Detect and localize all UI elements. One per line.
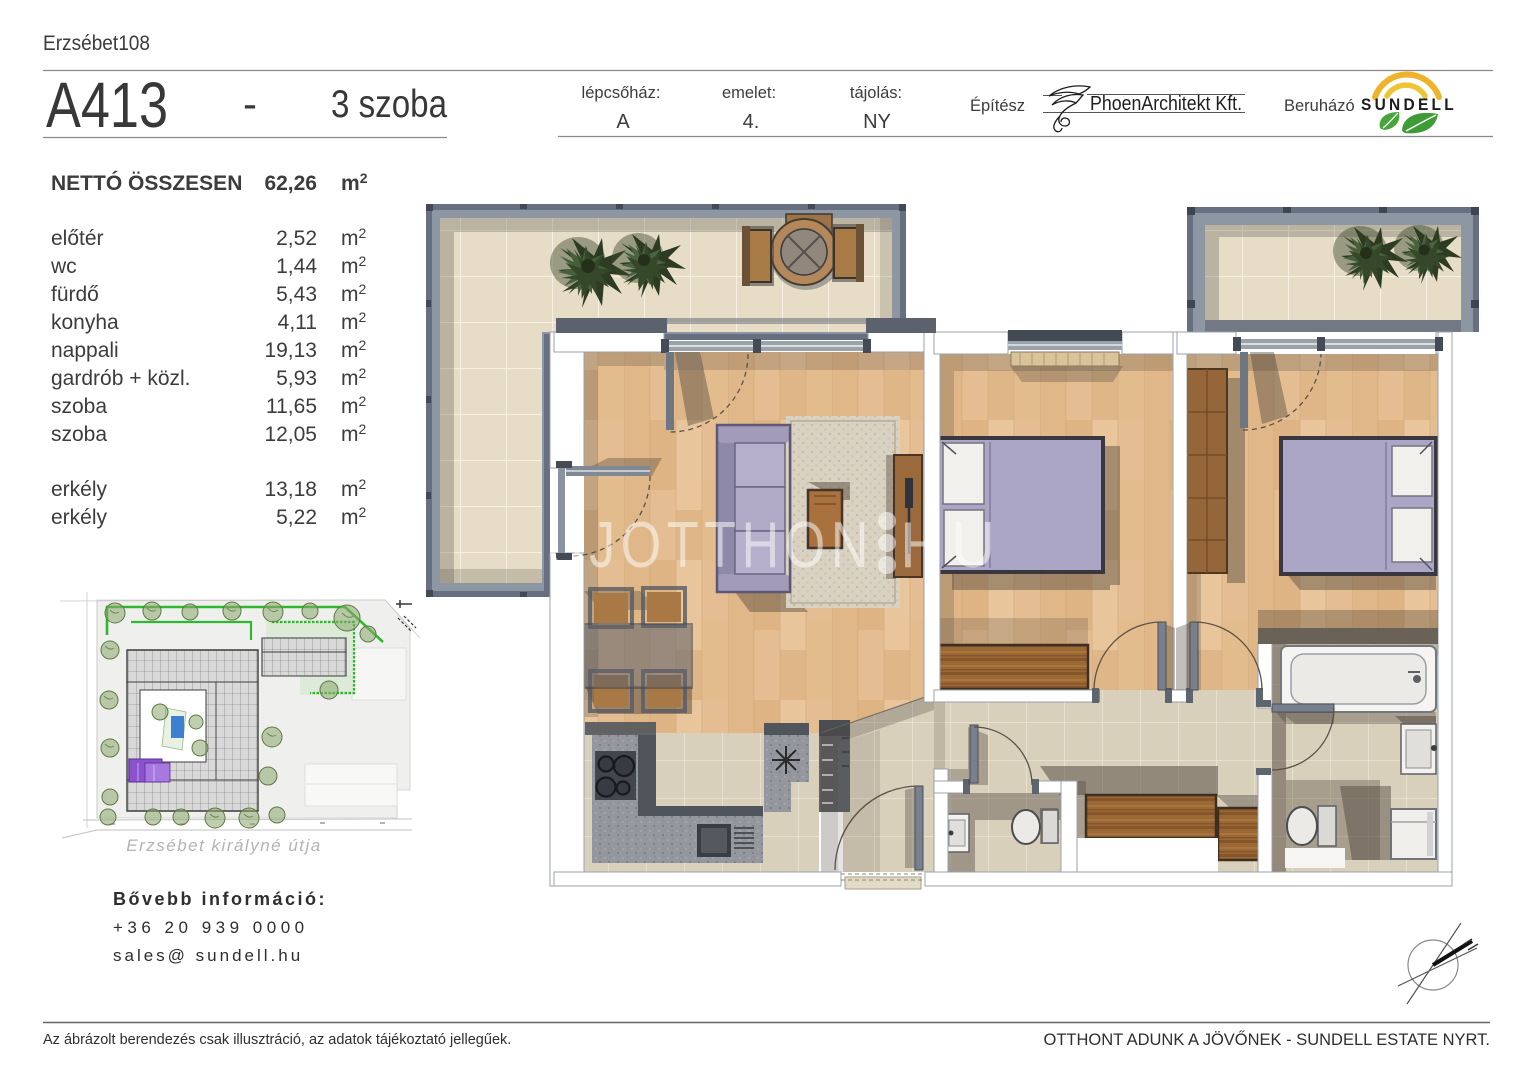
svg-text:erkély: erkély — [51, 506, 108, 529]
svg-text:1,44: 1,44 — [276, 255, 317, 278]
svg-text:Erzsébet királyné útja: Erzsébet királyné útja — [126, 836, 322, 855]
svg-text:fürdő: fürdő — [51, 283, 99, 306]
svg-text:12,05: 12,05 — [264, 423, 317, 446]
svg-text:Bővebb információ:: Bővebb információ: — [113, 889, 327, 909]
svg-text:erkély: erkély — [51, 478, 108, 501]
svg-text:Erzsébet108: Erzsébet108 — [43, 32, 150, 55]
svg-text:sales@ sundell.hu: sales@ sundell.hu — [113, 946, 303, 965]
svg-text:5,22: 5,22 — [276, 506, 317, 529]
svg-text:gardrób + közl.: gardrób + közl. — [51, 367, 191, 390]
svg-text:emelet:: emelet: — [722, 84, 776, 102]
svg-text:lépcsőház:: lépcsőház: — [582, 84, 661, 102]
svg-text:Építész: Építész — [970, 96, 1025, 115]
svg-text:Beruházó: Beruházó — [1284, 97, 1355, 115]
svg-text:NY: NY — [863, 111, 891, 133]
svg-text:Az ábrázolt berendezés csak il: Az ábrázolt berendezés csak illusztráció… — [43, 1032, 511, 1048]
svg-text:A413: A413 — [46, 69, 168, 141]
svg-text:UJOTTHON: UJOTTHON — [546, 508, 874, 581]
svg-text:A: A — [616, 111, 630, 133]
svg-text:19,13: 19,13 — [264, 339, 317, 362]
svg-text:5,43: 5,43 — [276, 283, 317, 306]
svg-text:2,52: 2,52 — [276, 227, 317, 250]
svg-text:11,65: 11,65 — [266, 395, 317, 418]
svg-text:tájolás:: tájolás: — [850, 84, 902, 102]
svg-text:konyha: konyha — [51, 311, 119, 334]
svg-text:-: - — [243, 80, 257, 127]
svg-text:HU: HU — [900, 508, 1002, 581]
svg-text:4,11: 4,11 — [278, 311, 317, 334]
svg-text:szoba: szoba — [51, 395, 107, 418]
svg-text:előtér: előtér — [51, 227, 104, 250]
svg-text:13,18: 13,18 — [264, 478, 317, 501]
svg-text:62,26: 62,26 — [264, 172, 317, 195]
svg-text:3 szoba: 3 szoba — [331, 83, 447, 126]
svg-text:PhoenArchitekt Kft.: PhoenArchitekt Kft. — [1090, 93, 1242, 115]
svg-text:nappali: nappali — [51, 339, 119, 362]
svg-text:NETTÓ ÖSSZESEN: NETTÓ ÖSSZESEN — [51, 171, 242, 195]
svg-text:szoba: szoba — [51, 423, 107, 446]
svg-text:4.: 4. — [743, 111, 760, 133]
svg-text:5,93: 5,93 — [276, 367, 317, 390]
svg-text:+36 20 939 0000: +36 20 939 0000 — [113, 918, 309, 937]
svg-text:wc: wc — [50, 255, 77, 278]
svg-text:OTTHONT ADUNK A JÖVŐNEK - SUND: OTTHONT ADUNK A JÖVŐNEK - SUNDELL ESTATE… — [1043, 1030, 1490, 1049]
svg-text:SUNDELL: SUNDELL — [1361, 96, 1457, 114]
